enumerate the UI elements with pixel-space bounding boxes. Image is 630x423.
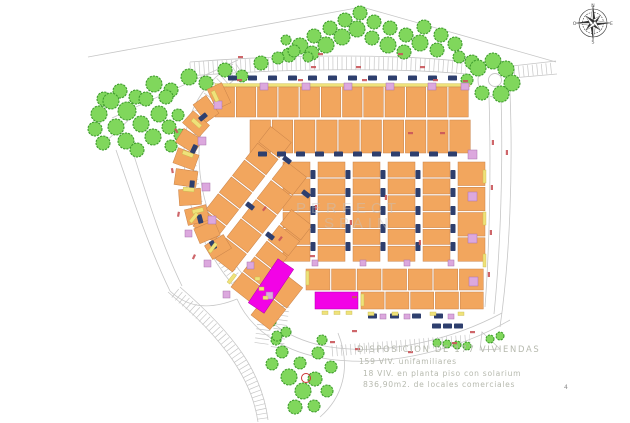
house-unit xyxy=(361,292,384,309)
yellow-accent xyxy=(430,312,436,316)
car xyxy=(258,152,267,157)
car xyxy=(451,224,456,233)
car xyxy=(381,188,386,197)
tree xyxy=(430,43,444,57)
tree xyxy=(133,116,149,132)
car xyxy=(268,76,277,81)
house-unit xyxy=(406,87,426,117)
car xyxy=(391,152,400,157)
tree xyxy=(453,51,465,63)
tree xyxy=(272,331,282,341)
car xyxy=(432,324,441,329)
car xyxy=(412,314,421,319)
house-unit xyxy=(408,269,432,290)
dimension-label xyxy=(491,185,493,190)
dimension-label xyxy=(463,80,468,82)
house-unit xyxy=(236,87,256,117)
house-unit xyxy=(353,179,380,194)
pink-accent xyxy=(380,314,386,319)
car xyxy=(416,170,421,179)
tree xyxy=(470,60,486,76)
car xyxy=(451,170,456,179)
tree xyxy=(295,383,311,399)
pink-accent xyxy=(468,150,477,159)
tree xyxy=(380,37,396,53)
tree xyxy=(383,21,397,35)
tree xyxy=(303,52,313,62)
tree xyxy=(496,332,504,340)
dimension-label xyxy=(433,79,438,81)
tree xyxy=(417,20,431,34)
tree xyxy=(365,31,379,45)
house-unit xyxy=(357,269,381,290)
house-unit xyxy=(450,120,471,153)
tree xyxy=(334,29,350,45)
car xyxy=(311,170,316,179)
compass-rose: N E S O xyxy=(573,3,613,46)
house-unit xyxy=(428,87,448,117)
tree xyxy=(145,129,161,145)
car xyxy=(296,152,305,157)
pink-accent xyxy=(204,260,211,267)
car xyxy=(346,242,351,251)
car xyxy=(348,76,357,81)
tree xyxy=(294,357,306,369)
house-unit xyxy=(449,87,469,117)
compass-star xyxy=(576,6,610,40)
dimension-label xyxy=(310,255,315,257)
dimension-label xyxy=(490,230,492,235)
house-unit xyxy=(435,292,458,309)
road xyxy=(512,74,557,78)
legend-line-4: 836,90m2. de locales comerciales xyxy=(363,380,515,389)
tree xyxy=(434,28,448,42)
dimension-label xyxy=(356,66,361,68)
tree xyxy=(281,369,297,385)
car xyxy=(408,76,417,81)
tree xyxy=(96,136,110,150)
tree xyxy=(321,385,333,397)
tree xyxy=(325,361,337,373)
car xyxy=(334,152,343,157)
road xyxy=(116,150,170,291)
house-unit xyxy=(458,162,485,186)
yellow-accent xyxy=(322,311,328,315)
watermark-line2: SPAIN xyxy=(324,215,393,232)
tree xyxy=(108,119,124,135)
pink-accent xyxy=(448,314,454,319)
house-unit xyxy=(385,87,405,117)
house-unit xyxy=(423,246,450,261)
house-unit xyxy=(318,179,345,194)
house-unit xyxy=(423,213,450,228)
car xyxy=(228,76,237,81)
dimension-label xyxy=(398,53,403,55)
tree xyxy=(353,6,367,20)
house-unit xyxy=(353,246,380,261)
yellow-accent xyxy=(255,277,260,281)
yellow-accent xyxy=(334,311,340,315)
tree xyxy=(103,93,119,109)
house-unit xyxy=(343,87,363,117)
house-unit xyxy=(294,120,315,153)
house-unit xyxy=(386,292,409,309)
yellow-accent xyxy=(392,312,398,316)
dimension-label xyxy=(440,132,445,134)
tree xyxy=(91,106,107,122)
tree xyxy=(146,76,162,92)
dimension-label xyxy=(298,79,303,81)
pink-accent xyxy=(312,260,318,266)
house-unit xyxy=(388,179,415,194)
tree xyxy=(172,109,184,121)
house-unit xyxy=(388,246,415,261)
car xyxy=(311,188,316,197)
house-unit xyxy=(300,87,320,117)
dimension-label xyxy=(238,56,243,58)
house-unit xyxy=(321,87,341,117)
housing-row xyxy=(306,269,483,290)
tree xyxy=(139,92,153,106)
yellow-accent xyxy=(346,311,352,315)
legend-line-2: 159 VIV. unifamiliares xyxy=(359,357,457,366)
house-unit xyxy=(434,269,458,290)
tree xyxy=(317,335,327,345)
house-unit xyxy=(364,87,384,117)
car xyxy=(416,224,421,233)
house-unit xyxy=(388,162,415,177)
pink-accent xyxy=(468,192,477,201)
compass-e-label: E xyxy=(610,21,613,27)
dimension-label xyxy=(237,79,242,81)
house-unit xyxy=(423,179,450,194)
house-unit xyxy=(361,120,382,153)
tree xyxy=(118,102,136,120)
tree xyxy=(130,143,144,157)
legend-line-3: 18 VIV. en planta piso con solarium xyxy=(363,369,521,378)
car xyxy=(346,170,351,179)
pink-accent xyxy=(404,314,410,319)
tree xyxy=(493,86,509,102)
car xyxy=(429,152,438,157)
yellow-accent xyxy=(361,294,364,306)
car xyxy=(448,152,457,157)
dimension-label xyxy=(192,254,196,259)
housing-row xyxy=(423,162,450,261)
car xyxy=(451,188,456,197)
road xyxy=(190,56,468,62)
yellow-accent xyxy=(259,287,264,291)
dimension-label xyxy=(470,331,475,333)
house-unit xyxy=(460,292,483,309)
pink-accent xyxy=(208,216,216,224)
dimension-label xyxy=(408,132,413,134)
yellow-accent xyxy=(483,254,486,267)
car xyxy=(443,324,452,329)
pink-accent xyxy=(302,83,310,90)
compass-s-label: S xyxy=(592,40,595,46)
housing-row xyxy=(361,292,483,309)
house-unit xyxy=(332,269,356,290)
dimension-label xyxy=(171,168,174,173)
dimension-label xyxy=(177,212,180,217)
tree xyxy=(475,86,489,100)
car xyxy=(328,76,337,81)
car xyxy=(315,152,324,157)
tree xyxy=(312,347,324,359)
dimension-label xyxy=(492,140,494,145)
pink-accent xyxy=(198,137,206,145)
tree xyxy=(367,15,381,29)
house-unit xyxy=(339,120,360,153)
dimension-label xyxy=(506,150,508,155)
tree xyxy=(272,52,284,64)
car xyxy=(410,152,419,157)
tree xyxy=(266,358,278,370)
parking-strip xyxy=(175,293,263,421)
tree xyxy=(448,37,462,51)
compass-w-label: O xyxy=(573,21,577,27)
site-plan: PERFECT SPAIN DISPOSICION DE 177 VIVIEND… xyxy=(0,0,630,423)
house-unit xyxy=(458,213,485,237)
pink-accent xyxy=(185,230,192,237)
pink-accent xyxy=(260,83,268,90)
yellow-accent xyxy=(458,312,464,316)
pink-accent xyxy=(461,83,469,90)
car xyxy=(288,76,297,81)
yellow-accent xyxy=(306,271,309,285)
pink-accent xyxy=(428,83,436,90)
yellow-accent xyxy=(368,312,374,316)
tree xyxy=(151,106,167,122)
house-unit xyxy=(383,120,404,153)
pink-accent xyxy=(344,83,352,90)
tree xyxy=(276,346,288,358)
road xyxy=(512,61,556,66)
tree xyxy=(162,120,176,134)
car xyxy=(308,76,317,81)
road xyxy=(494,96,502,314)
car xyxy=(388,76,397,81)
house-unit xyxy=(423,196,450,211)
pink-accent xyxy=(214,101,222,109)
compass-n-label: N xyxy=(591,3,594,9)
pink-accent xyxy=(404,260,410,266)
tree xyxy=(288,45,300,57)
dimension-label xyxy=(362,79,367,81)
yellow-accent xyxy=(483,212,486,225)
car xyxy=(248,76,257,81)
commercial-building-horizontal xyxy=(315,292,358,309)
tree xyxy=(281,35,291,45)
yellow-accent xyxy=(483,170,486,183)
legend: DISPOSICION DE 177 VIVIENDAS 159 VIV. un… xyxy=(357,344,540,389)
tree xyxy=(399,28,413,42)
car xyxy=(451,242,456,251)
dimension-label xyxy=(330,341,335,343)
car xyxy=(311,242,316,251)
page-mark: 4 xyxy=(564,384,568,391)
yellow-accent xyxy=(263,296,268,300)
tree xyxy=(218,63,232,77)
house-unit xyxy=(423,229,450,244)
legend-title: DISPOSICION DE 177 VIVIENDAS xyxy=(357,344,540,354)
tree xyxy=(307,29,321,43)
dimension-label xyxy=(352,296,357,298)
yellow-accent xyxy=(183,187,194,192)
pink-accent xyxy=(469,277,478,286)
house-unit xyxy=(258,87,278,117)
car xyxy=(454,324,463,329)
house-unit xyxy=(279,87,299,117)
tree xyxy=(486,335,494,343)
dimension-label xyxy=(352,330,357,332)
house-unit xyxy=(318,246,345,261)
dimension-label xyxy=(420,66,425,68)
pink-accent xyxy=(247,262,254,269)
car xyxy=(381,242,386,251)
pink-accent xyxy=(386,83,394,90)
dimension-label xyxy=(488,272,490,277)
tree xyxy=(338,13,352,27)
pink-accent xyxy=(448,260,454,266)
car xyxy=(353,152,362,157)
car xyxy=(416,206,421,215)
house-unit xyxy=(405,120,426,153)
car xyxy=(311,224,316,233)
site-plan-canvas: PERFECT SPAIN DISPOSICION DE 177 VIVIEND… xyxy=(0,0,630,423)
pink-accent xyxy=(360,260,366,266)
pink-accent xyxy=(468,234,477,243)
tree xyxy=(349,21,365,37)
parking-strip xyxy=(514,68,554,72)
tree xyxy=(318,37,334,53)
house-unit xyxy=(306,269,330,290)
pink-accent xyxy=(202,183,210,191)
car xyxy=(346,188,351,197)
car xyxy=(368,76,377,81)
dimension-label xyxy=(318,53,323,55)
dimension-label xyxy=(311,66,316,68)
housing-row xyxy=(458,162,485,261)
house-unit xyxy=(353,162,380,177)
car xyxy=(381,170,386,179)
tree xyxy=(181,69,197,85)
tree xyxy=(88,122,102,136)
car xyxy=(451,206,456,215)
car xyxy=(372,152,381,157)
car xyxy=(448,76,457,81)
tree xyxy=(254,56,268,70)
pink-accent xyxy=(223,291,230,298)
tree xyxy=(323,21,337,35)
tree xyxy=(288,400,302,414)
car xyxy=(416,188,421,197)
tree xyxy=(159,90,173,104)
road xyxy=(130,143,182,286)
tree xyxy=(412,35,428,51)
house-unit xyxy=(411,292,434,309)
tree xyxy=(308,400,320,412)
roundabout-island xyxy=(489,74,502,87)
house-unit xyxy=(383,269,407,290)
house-unit xyxy=(318,162,345,177)
house-unit xyxy=(423,162,450,177)
house-unit xyxy=(317,120,338,153)
house-unit xyxy=(428,120,449,153)
dimension-label xyxy=(419,240,421,245)
tree xyxy=(397,45,411,59)
tree xyxy=(165,140,177,152)
